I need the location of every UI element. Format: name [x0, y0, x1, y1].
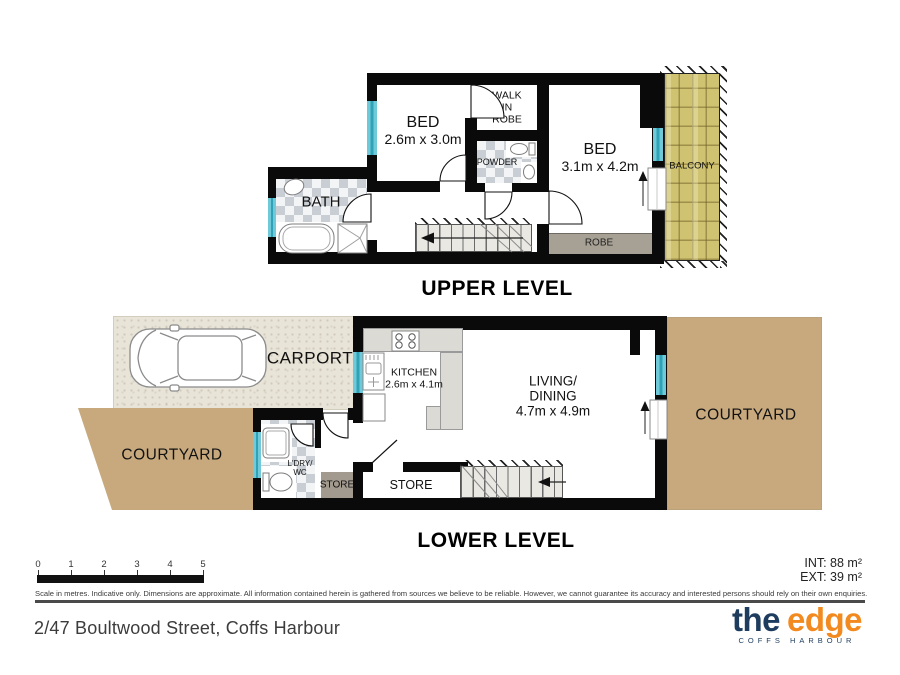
- wall: [403, 462, 468, 472]
- floorplan-page: BED 2.6m x 3.0m WALK IN ROBE POWDER BED …: [0, 0, 900, 675]
- powder-toilet-nook: [506, 141, 537, 157]
- bed1-dims: 2.6m x 3.0m: [384, 132, 461, 148]
- scale-tick-0: 0: [35, 559, 40, 570]
- stairs-upper: [415, 224, 532, 252]
- living-dims: 4.7m x 4.9m: [516, 404, 590, 419]
- room-label-walk-in-robe: WALK IN ROBE: [492, 90, 522, 125]
- scale-tick-2: 2: [101, 559, 106, 570]
- laundry-window: [253, 432, 261, 478]
- wall: [367, 73, 664, 85]
- wall: [253, 408, 323, 420]
- room-label-bath: BATH: [302, 195, 341, 212]
- wall: [367, 181, 440, 192]
- room-label-powder: POWDER: [477, 157, 518, 167]
- wall: [253, 498, 667, 510]
- wall: [367, 240, 377, 252]
- area-summary: INT: 88 m² EXT: 39 m²: [742, 556, 862, 584]
- external-area: EXT: 39 m²: [742, 570, 862, 584]
- room-label-carport: CARPORT: [267, 348, 353, 367]
- shower-icon: [338, 224, 367, 253]
- living-line2: DINING: [516, 388, 590, 403]
- kitchen-window: [353, 352, 363, 393]
- logo-word-edge: edge: [787, 601, 862, 638]
- property-address: 2/47 Boultwood Street, Coffs Harbour: [34, 618, 340, 639]
- powder-basin-nook: [521, 162, 537, 183]
- lower-level-title: LOWER LEVEL: [417, 529, 574, 553]
- bed2-window: [653, 128, 663, 161]
- fridge-label: F: [370, 402, 378, 417]
- scale-tick-5: 5: [200, 559, 205, 570]
- bed1-window: [367, 101, 377, 155]
- room-label-bed2: BED 3.1m x 4.2m: [561, 141, 638, 175]
- room-label-kitchen: KITCHEN 2.6m x 4.1m: [385, 367, 443, 391]
- room-label-living-dining: LIVING/ DINING 4.7m x 4.9m: [516, 373, 590, 418]
- internal-area: INT: 88 m²: [742, 556, 862, 570]
- logo-tagline: COFFS HARBOUR: [732, 636, 862, 645]
- store-door-leaf: [372, 440, 397, 463]
- logo-word-the: the: [732, 601, 780, 638]
- scale-bar-rule: [37, 575, 204, 583]
- disclaimer-text: Scale in metres. Indicative only. Dimens…: [35, 589, 867, 598]
- kitchen-bench-foot: [426, 406, 441, 430]
- wall: [630, 330, 640, 355]
- wall: [537, 73, 549, 191]
- scale-tick-1: 1: [68, 559, 73, 570]
- wall: [652, 73, 664, 264]
- balcony-hatch-top: [660, 66, 727, 73]
- kitchen-dims: 2.6m x 4.1m: [385, 379, 443, 391]
- wall: [465, 118, 477, 192]
- bed2-dims: 3.1m x 4.2m: [561, 159, 638, 175]
- agency-logo: theedge COFFS HARBOUR: [732, 605, 862, 645]
- kitchen-bench-side: [440, 352, 463, 430]
- store-room-label: STORE: [390, 478, 433, 492]
- living-window: [656, 355, 666, 395]
- bed2-door-arc: [549, 191, 582, 224]
- upper-level-title: UPPER LEVEL: [421, 277, 572, 301]
- balcony-hatch-right: [720, 66, 727, 268]
- kitchen-bench-top: [363, 328, 463, 352]
- bathtub-icon: [279, 224, 334, 253]
- kitchen-sink-icon: [363, 353, 384, 390]
- kitchen-name: KITCHEN: [385, 367, 443, 379]
- room-label-balcony: BALCONY: [669, 162, 714, 173]
- wall: [353, 316, 363, 352]
- room-label-laundry-wc: L'DRY/ WC: [288, 460, 313, 478]
- wall: [537, 224, 549, 264]
- bed1-name: BED: [384, 114, 461, 132]
- logo-wordmark: theedge: [732, 605, 862, 635]
- robe-label: ROBE: [585, 237, 613, 248]
- living-line1: LIVING/: [516, 373, 590, 388]
- laundry-tub-nook: [261, 424, 292, 462]
- wir-line2: IN: [492, 102, 522, 114]
- entry-door-arc: [323, 413, 348, 438]
- powder-door-arc: [485, 192, 512, 219]
- wall: [348, 408, 363, 420]
- store-small-label: STORE: [320, 479, 354, 490]
- bed2-name: BED: [561, 141, 638, 159]
- room-label-courtyard-right: COURTYARD: [695, 406, 796, 423]
- bath-window: [268, 198, 276, 237]
- wir-line1: WALK: [492, 90, 522, 102]
- laundry-line2: WC: [288, 469, 313, 478]
- wall: [353, 462, 373, 472]
- stairs-lower: [460, 466, 563, 498]
- room-label-bed1: BED 2.6m x 3.0m: [384, 114, 461, 148]
- wall: [268, 167, 375, 179]
- wir-line3: ROBE: [492, 114, 522, 126]
- room-label-courtyard-left: COURTYARD: [121, 446, 222, 463]
- scale-tick-3: 3: [134, 559, 139, 570]
- scale-tick-4: 4: [167, 559, 172, 570]
- balcony-hatch-bottom: [660, 261, 727, 268]
- bed1-door-arc: [440, 155, 466, 181]
